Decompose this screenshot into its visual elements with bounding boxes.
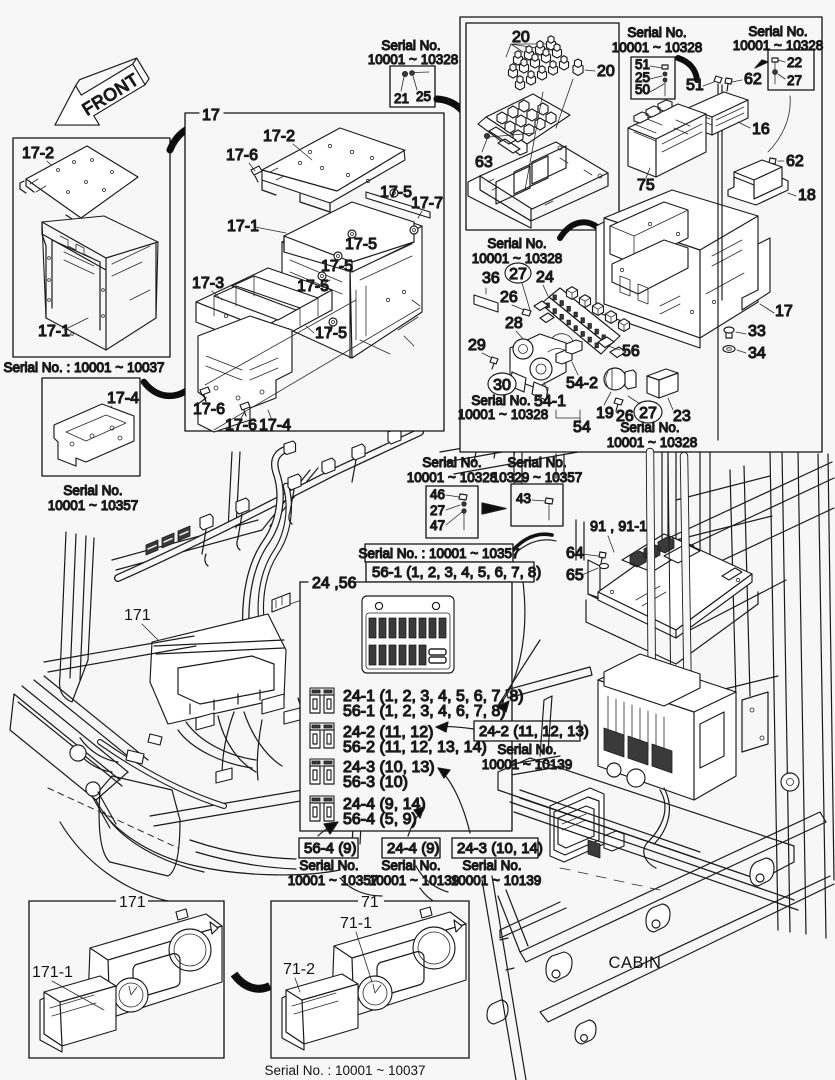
svg-text:171-1: 171-1 xyxy=(32,964,73,981)
svg-text:10001 ~ 10357: 10001 ~ 10357 xyxy=(48,498,138,513)
svg-text:75: 75 xyxy=(637,177,655,194)
svg-text:24 ,56: 24 ,56 xyxy=(312,575,357,592)
svg-text:17-6: 17-6 xyxy=(226,147,258,164)
svg-text:10001 ~ 10139: 10001 ~ 10139 xyxy=(451,873,541,888)
svg-text:Serial No.: Serial No. xyxy=(471,393,530,408)
svg-text:24-2 (11, 12, 13): 24-2 (11, 12, 13) xyxy=(479,723,589,740)
svg-text:Serial No.: Serial No. xyxy=(381,858,440,873)
svg-text:Serial No.: Serial No. xyxy=(627,25,686,40)
svg-text:27: 27 xyxy=(430,503,445,518)
svg-text:17-5: 17-5 xyxy=(380,184,412,201)
svg-text:54-2: 54-2 xyxy=(566,375,598,392)
svg-text:Serial No. : 10001 ~ 10037: Serial No. : 10001 ~ 10037 xyxy=(4,360,165,375)
svg-text:36: 36 xyxy=(482,270,500,287)
svg-text:10329 ~ 10357: 10329 ~ 10357 xyxy=(492,470,582,485)
svg-text:171: 171 xyxy=(124,607,151,624)
svg-text:17-3: 17-3 xyxy=(192,275,224,292)
svg-text:Serial No.: Serial No. xyxy=(63,483,122,498)
svg-text:56-3 (10): 56-3 (10) xyxy=(343,774,408,791)
svg-text:10001 ~ 10328: 10001 ~ 10328 xyxy=(607,435,697,450)
svg-text:54-1: 54-1 xyxy=(534,393,566,410)
svg-text:20: 20 xyxy=(512,29,530,46)
svg-text:Serial No.: Serial No. xyxy=(507,455,566,470)
svg-text:56-4 (5, 9): 56-4 (5, 9) xyxy=(343,811,417,828)
svg-text:10001 ~ 10357: 10001 ~ 10357 xyxy=(288,873,378,888)
svg-text:33: 33 xyxy=(748,323,766,340)
svg-text:91 , 91-1: 91 , 91-1 xyxy=(590,519,647,535)
svg-text:17-1: 17-1 xyxy=(227,218,259,235)
svg-text:29: 29 xyxy=(468,337,486,354)
svg-text:56-2 (11, 12, 13, 14): 56-2 (11, 12, 13, 14) xyxy=(343,739,487,756)
svg-text:47: 47 xyxy=(430,518,445,533)
svg-text:Serial No.: Serial No. xyxy=(422,455,481,470)
svg-text:17-4: 17-4 xyxy=(107,390,139,407)
svg-text:71-1: 71-1 xyxy=(340,915,372,932)
svg-text:65: 65 xyxy=(566,567,584,584)
svg-text:56-4 (9): 56-4 (9) xyxy=(304,840,357,857)
svg-text:10001 ~ 10328: 10001 ~ 10328 xyxy=(612,40,702,55)
svg-text:24: 24 xyxy=(536,269,554,286)
svg-text:34: 34 xyxy=(748,345,766,362)
svg-text:62: 62 xyxy=(744,71,762,88)
svg-text:64: 64 xyxy=(566,545,584,562)
svg-text:17: 17 xyxy=(202,107,220,124)
svg-text:17-2: 17-2 xyxy=(22,145,54,162)
svg-text:63: 63 xyxy=(475,154,493,171)
svg-text:56-1 (1, 2, 3, 4, 5, 6, 7, 8): 56-1 (1, 2, 3, 4, 5, 6, 7, 8) xyxy=(372,564,541,581)
svg-text:25: 25 xyxy=(416,89,431,104)
svg-text:50: 50 xyxy=(635,82,650,97)
svg-text:17-5: 17-5 xyxy=(297,278,329,295)
svg-text:27: 27 xyxy=(509,266,527,283)
svg-text:51: 51 xyxy=(686,77,704,94)
svg-text:17-7: 17-7 xyxy=(411,195,443,212)
svg-text:17-1: 17-1 xyxy=(38,323,70,340)
svg-text:46: 46 xyxy=(430,487,445,502)
svg-text:Serial No.: Serial No. xyxy=(620,420,679,435)
svg-text:21: 21 xyxy=(394,91,409,106)
svg-text:17-5: 17-5 xyxy=(345,236,377,253)
svg-text:Serial No.: Serial No. xyxy=(462,858,521,873)
svg-text:18: 18 xyxy=(798,187,816,204)
svg-text:19: 19 xyxy=(596,405,614,422)
svg-text:30: 30 xyxy=(493,377,511,394)
svg-text:71: 71 xyxy=(361,894,379,911)
svg-text:10001 ~ 10139: 10001 ~ 10139 xyxy=(369,873,459,888)
svg-text:28: 28 xyxy=(505,315,523,332)
svg-text:27: 27 xyxy=(787,73,802,88)
svg-text:17-5: 17-5 xyxy=(321,258,353,275)
svg-text:Serial No.: Serial No. xyxy=(381,38,440,53)
svg-text:10001 ~ 10328: 10001 ~ 10328 xyxy=(407,470,497,485)
svg-text:17-4: 17-4 xyxy=(259,417,291,434)
svg-text:17-5: 17-5 xyxy=(315,325,347,342)
svg-text:17-2: 17-2 xyxy=(263,128,295,145)
svg-text:22: 22 xyxy=(787,55,802,70)
svg-text:56: 56 xyxy=(622,343,640,360)
svg-text:24-3 (10, 14): 24-3 (10, 14) xyxy=(457,840,543,857)
svg-text:CABIN: CABIN xyxy=(609,954,662,972)
svg-text:16: 16 xyxy=(752,121,770,138)
svg-text:10001 ~ 10328: 10001 ~ 10328 xyxy=(368,52,458,67)
svg-text:26: 26 xyxy=(500,289,518,306)
svg-text:20: 20 xyxy=(597,63,615,80)
svg-text:56-1 (1, 2, 3, 4, 6, 7, 8): 56-1 (1, 2, 3, 4, 6, 7, 8) xyxy=(343,703,506,720)
svg-text:71-2: 71-2 xyxy=(283,961,315,978)
svg-text:17-6: 17-6 xyxy=(193,401,225,418)
svg-text:Serial No.: Serial No. xyxy=(748,24,807,39)
svg-text:Serial No. : 10001 ~ 10037: Serial No. : 10001 ~ 10037 xyxy=(265,1063,426,1078)
svg-text:Serial No. : 10001 ~ 10357: Serial No. : 10001 ~ 10357 xyxy=(359,546,520,561)
svg-text:62: 62 xyxy=(786,153,804,170)
svg-text:17-6: 17-6 xyxy=(225,417,257,434)
svg-text:171: 171 xyxy=(119,894,146,911)
svg-text:17: 17 xyxy=(775,303,793,320)
svg-text:54: 54 xyxy=(573,419,591,436)
svg-text:24-4 (9): 24-4 (9) xyxy=(387,840,440,857)
svg-text:Serial No.: Serial No. xyxy=(299,858,358,873)
svg-text:Serial No.: Serial No. xyxy=(487,236,546,251)
svg-text:43: 43 xyxy=(516,491,531,506)
